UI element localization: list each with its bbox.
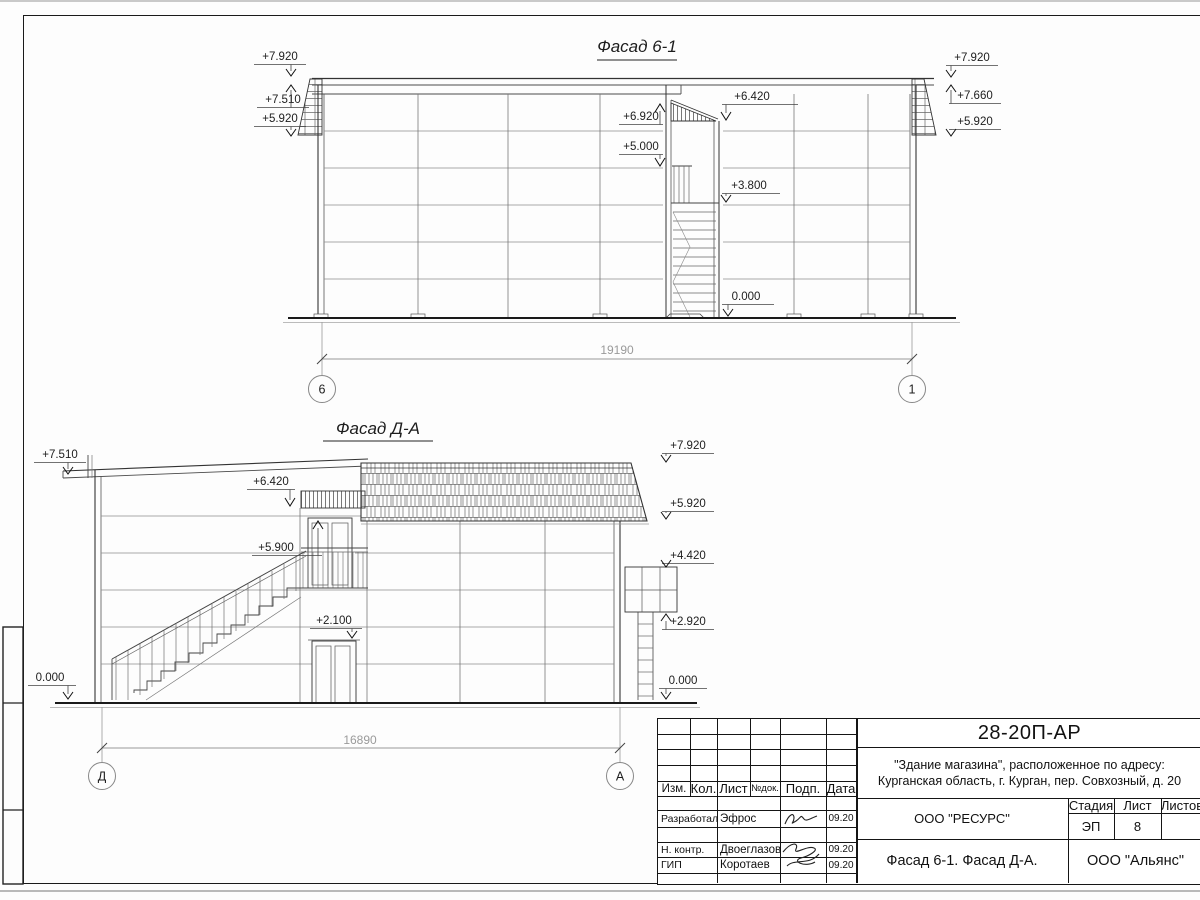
svg-text:+6.420: +6.420: [734, 91, 770, 103]
stage-value: ЭП: [1068, 813, 1114, 839]
sheet-drawing-title: Фасад 6-1. Фасад Д-А.: [856, 839, 1068, 883]
elevation-mark: +6.420: [247, 476, 295, 506]
signer-name: Коротаев: [717, 857, 780, 873]
elevation-mark: 0.000: [659, 675, 707, 699]
signature-date: 09.20: [826, 810, 856, 827]
signer-name: Эфрос: [717, 810, 780, 827]
signer-role: Разработал: [658, 810, 717, 827]
upper-door: [305, 518, 355, 588]
elevation-mark: 0.000: [28, 672, 76, 699]
elevation-mark: +3.800: [721, 180, 780, 202]
svg-text:+2.100: +2.100: [316, 615, 352, 627]
svg-text:+7.920: +7.920: [670, 440, 706, 452]
sheet-number: 8: [1114, 813, 1161, 839]
svg-text:+7.920: +7.920: [262, 51, 298, 63]
svg-text:+5.920: +5.920: [670, 498, 706, 510]
svg-text:+5.900: +5.900: [258, 542, 294, 554]
drawing-sheet: +7.920 +7.510 +5.920 +6.920 +5.000 +6.42…: [0, 0, 1200, 900]
rev-col-ndok: №док.: [750, 781, 780, 796]
rev-col-izm: Изм.: [658, 781, 690, 796]
external-stair: [112, 551, 306, 700]
sheets-label: Листов: [1161, 798, 1200, 813]
elevation-mark: +4.420: [661, 550, 714, 567]
svg-text:+5.000: +5.000: [623, 141, 659, 153]
signer-name: Двоеглазов: [717, 842, 780, 857]
axis-label: А: [616, 770, 625, 784]
elevation-mark: 0.000: [722, 291, 774, 316]
stair-balusters: [116, 557, 296, 700]
svg-text:+6.420: +6.420: [253, 476, 289, 488]
svg-text:+2.920: +2.920: [670, 616, 706, 628]
elevation-mark: +5.920: [946, 116, 1001, 136]
elevation-mark: +6.920: [619, 104, 665, 125]
sheet-label: Лист: [1114, 798, 1161, 813]
dimension-label: 19190: [600, 343, 634, 357]
rev-col-podp: Подп.: [780, 781, 826, 796]
elevation-mark: +2.100: [310, 615, 362, 638]
stair-tower: [663, 85, 723, 318]
elevation-mark: +7.920: [661, 440, 714, 462]
project-description: "Здание магазина", расположенное по адре…: [856, 747, 1200, 798]
elevation-mark: +2.920: [661, 614, 714, 630]
facade-d-a-title: Фасад Д-А: [336, 419, 420, 438]
elevation-mark: +7.510: [257, 85, 309, 108]
facade-6-1-view: +7.920 +7.510 +5.920 +6.920 +5.000 +6.42…: [254, 37, 1001, 403]
signature-scribble: [778, 839, 828, 875]
svg-text:0.000: 0.000: [669, 675, 698, 687]
rev-col-kol: Кол.: [690, 781, 717, 796]
dimension-label: 16890: [343, 733, 377, 747]
elevation-mark: +7.660: [946, 85, 1001, 104]
svg-text:+5.920: +5.920: [957, 116, 993, 128]
shingle-roof: [361, 463, 649, 524]
facade-6-1-title: Фасад 6-1: [597, 37, 677, 56]
axis-label: 1: [909, 383, 916, 397]
rev-col-list: Лист: [717, 781, 750, 796]
axis-label: Д: [98, 770, 107, 784]
svg-text:+7.510: +7.510: [42, 449, 78, 461]
svg-text:+3.800: +3.800: [731, 180, 767, 192]
stage-label: Стадия: [1068, 798, 1114, 813]
org-client: ООО "Альянс": [1068, 839, 1200, 883]
door-canopy-band: [301, 491, 365, 508]
svg-text:+6.920: +6.920: [623, 111, 659, 123]
org-designer: ООО "РЕСУРС": [856, 798, 1068, 839]
svg-text:0.000: 0.000: [36, 672, 65, 684]
signature-scribble: [780, 810, 826, 827]
elevation-mark: +7.920: [254, 51, 306, 76]
elevation-mark: +7.920: [946, 52, 998, 77]
axis-label: 6: [319, 383, 326, 397]
title-block: 28-20П-АР "Здание магазина", расположенн…: [657, 718, 1200, 885]
elevation-mark: +5.920: [661, 498, 714, 519]
facade-d-a-view: +7.510 0.000 +6.420 +5.900 +2.100 +7.920…: [28, 419, 714, 790]
svg-text:+7.920: +7.920: [954, 52, 990, 64]
signer-role: Н. контр.: [658, 842, 717, 857]
lower-door: [308, 640, 360, 703]
svg-text:+7.510: +7.510: [265, 94, 301, 106]
sheet-edge-bottom: [0, 890, 1200, 892]
dimension-top-facade: 19190 6 1: [309, 322, 926, 403]
svg-text:0.000: 0.000: [732, 291, 761, 303]
signature-date: 09.20: [826, 857, 856, 873]
signature-date: 09.20: [826, 842, 856, 857]
svg-text:+5.920: +5.920: [262, 113, 298, 125]
elevation-marks-top-facade: +7.920 +7.510 +5.920 +6.920 +5.000 +6.42…: [254, 51, 1001, 316]
sheets-total: [1161, 813, 1200, 839]
document-code: 28-20П-АР: [856, 719, 1200, 747]
left-margin-boxes: [3, 627, 23, 884]
elevation-mark: +6.420: [721, 91, 798, 120]
dimension-bottom-facade: 16890 Д А: [89, 707, 634, 790]
svg-text:+7.660: +7.660: [957, 90, 993, 102]
signer-role: ГИП: [658, 857, 717, 873]
rev-col-data: Дата: [826, 781, 856, 796]
svg-text:+4.420: +4.420: [670, 550, 706, 562]
elevation-mark: +5.000: [619, 141, 665, 166]
